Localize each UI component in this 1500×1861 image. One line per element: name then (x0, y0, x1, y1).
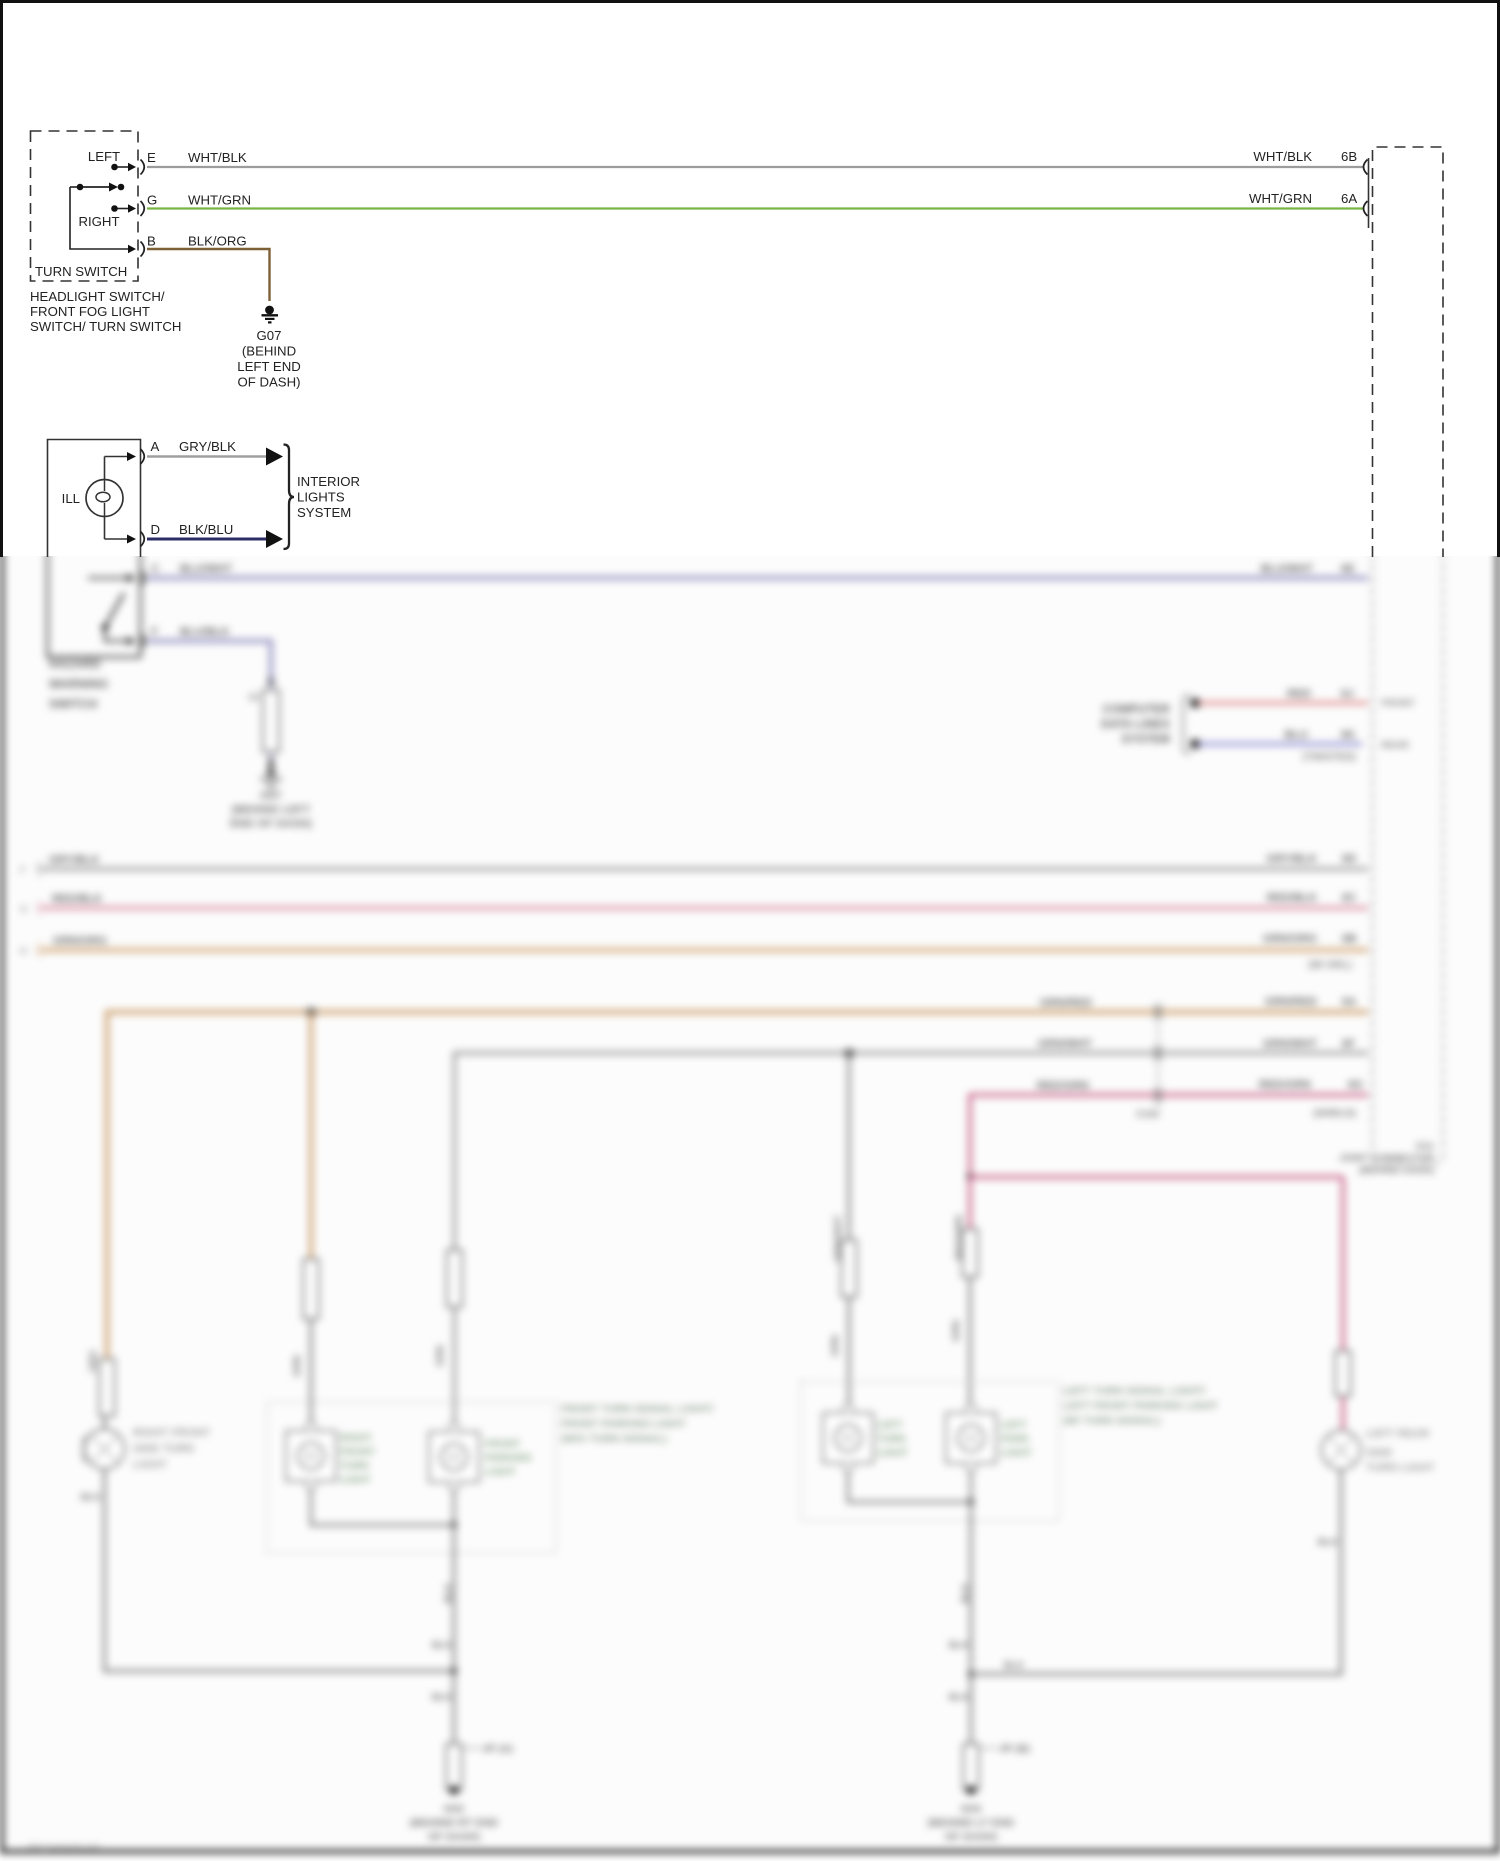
svg-text:OF DASH): OF DASH) (237, 375, 300, 390)
svg-text:(BEHIND: (BEHIND (242, 344, 296, 359)
svg-text:SYSTEM: SYSTEM (297, 505, 351, 520)
svg-text:WHT/BLK: WHT/BLK (188, 150, 247, 165)
svg-text:D: D (151, 522, 161, 537)
svg-text:HEADLIGHT SWITCH/: HEADLIGHT SWITCH/ (30, 289, 165, 304)
svg-text:LEFT: LEFT (88, 149, 120, 164)
svg-text:E: E (147, 150, 156, 165)
svg-text:G07: G07 (257, 328, 282, 343)
svg-text:WHT/BLK: WHT/BLK (1253, 149, 1312, 164)
svg-text:G: G (147, 193, 157, 208)
svg-text:LIGHTS: LIGHTS (297, 490, 345, 505)
svg-text:6A: 6A (1341, 191, 1357, 206)
svg-text:WHT/GRN: WHT/GRN (188, 193, 251, 208)
svg-text:TURN SWITCH: TURN SWITCH (35, 264, 127, 279)
svg-text:BLK/BLU: BLK/BLU (179, 522, 233, 537)
svg-text:SWITCH/ TURN SWITCH: SWITCH/ TURN SWITCH (30, 319, 181, 334)
svg-text:B: B (147, 234, 156, 249)
svg-text:ILL: ILL (62, 491, 80, 506)
svg-text:6B: 6B (1341, 149, 1357, 164)
svg-text:FRONT FOG LIGHT: FRONT FOG LIGHT (30, 304, 150, 319)
svg-text:A: A (151, 439, 160, 454)
svg-text:RIGHT: RIGHT (78, 214, 119, 229)
svg-text:WHT/GRN: WHT/GRN (1249, 191, 1312, 206)
svg-text:BLK/ORG: BLK/ORG (188, 234, 247, 249)
svg-text:LEFT END: LEFT END (237, 359, 301, 374)
svg-text:INTERIOR: INTERIOR (297, 474, 360, 489)
svg-text:GRY/BLK: GRY/BLK (179, 439, 236, 454)
